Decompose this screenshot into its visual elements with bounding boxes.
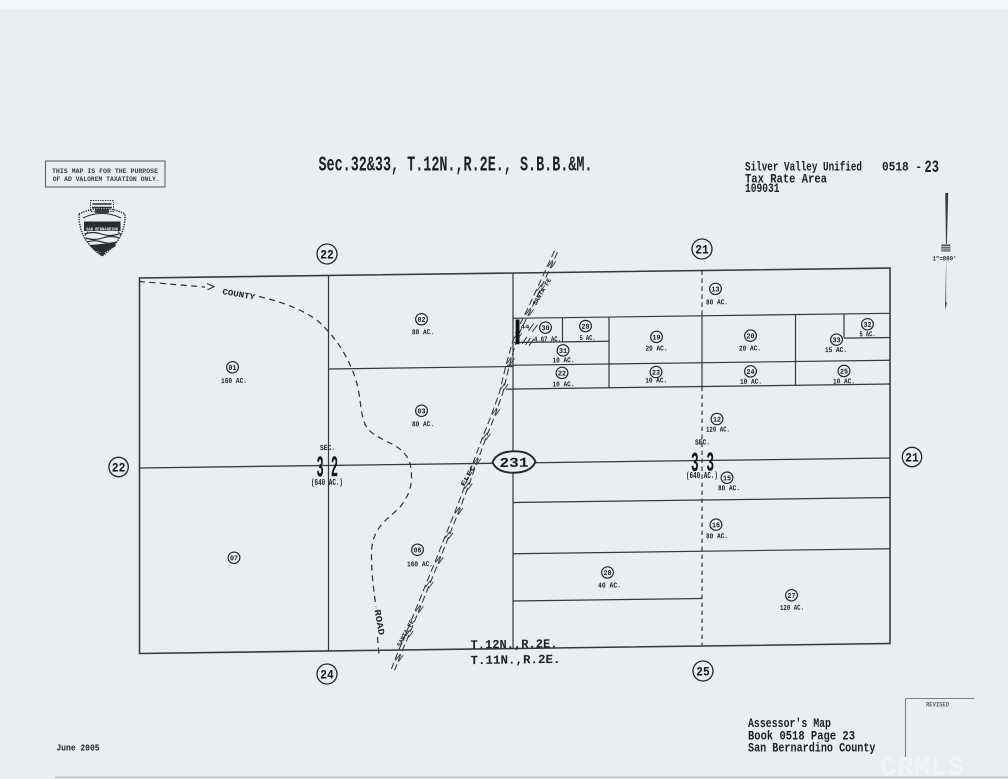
svg-text:160 AC.: 160 AC.: [407, 561, 433, 569]
svg-text:16: 16: [712, 522, 720, 530]
svg-text:23: 23: [652, 370, 660, 378]
svg-text:10 AC.: 10 AC.: [740, 379, 762, 387]
svg-text:40 AC.: 40 AC.: [598, 582, 621, 590]
svg-text:REVISED: REVISED: [926, 702, 949, 709]
svg-text:25: 25: [696, 665, 710, 679]
svg-text:SAN BERNARDINO: SAN BERNARDINO: [86, 226, 118, 232]
svg-text:160 AC.: 160 AC.: [221, 378, 247, 386]
svg-text:80 AC.: 80 AC.: [706, 533, 728, 541]
svg-text:20 AC.: 20 AC.: [739, 345, 761, 353]
svg-text:24: 24: [747, 369, 756, 377]
svg-text:27: 27: [787, 593, 795, 601]
svg-text:28: 28: [604, 570, 612, 578]
svg-text:CRMLS: CRMLS: [880, 754, 964, 779]
svg-text:13: 13: [712, 286, 720, 294]
svg-text:THIS MAP IS FOR THE PURPOSE: THIS MAP IS FOR THE PURPOSE: [52, 168, 158, 175]
svg-text:10 AC.: 10 AC.: [553, 357, 575, 365]
svg-text:15 AC.: 15 AC.: [825, 347, 847, 355]
svg-text:San Bernardino County: San Bernardino County: [748, 742, 876, 756]
svg-text:02: 02: [418, 317, 426, 325]
svg-text:4.67 AC.: 4.67 AC.: [534, 336, 561, 344]
svg-text:80 AC.: 80 AC.: [718, 485, 740, 493]
svg-text:10 AC.: 10 AC.: [833, 378, 855, 386]
svg-text:25: 25: [840, 368, 848, 376]
svg-text:22: 22: [558, 370, 566, 378]
svg-text:23: 23: [925, 158, 940, 178]
svg-text:120 AC.: 120 AC.: [780, 605, 804, 613]
svg-text:5 AC.: 5 AC.: [860, 331, 876, 339]
svg-text:33: 33: [833, 337, 841, 345]
svg-text:10 AC.: 10 AC.: [645, 377, 667, 385]
svg-text:20: 20: [747, 333, 755, 341]
svg-text:(640 AC.): (640 AC.): [686, 470, 718, 481]
svg-text:06: 06: [414, 547, 422, 555]
svg-text:21: 21: [905, 451, 919, 465]
svg-text:20 AC.: 20 AC.: [646, 345, 668, 353]
svg-text:31: 31: [559, 348, 568, 356]
svg-text:SEC.: SEC.: [695, 439, 710, 447]
svg-text:5 AC.: 5 AC.: [579, 335, 595, 343]
svg-text:Sec.32&33, T.12N.,R.2E., S.B.B: Sec.32&33, T.12N.,R.2E., S.B.B.&M.: [319, 155, 593, 178]
svg-text:22: 22: [320, 248, 334, 262]
svg-text:10 AC.: 10 AC.: [553, 381, 575, 389]
svg-text:June 2005: June 2005: [57, 744, 100, 754]
svg-text:32: 32: [864, 322, 872, 330]
svg-text:19: 19: [653, 334, 661, 342]
svg-text:21: 21: [695, 243, 709, 257]
svg-text:231: 231: [500, 457, 529, 472]
svg-text:01: 01: [228, 365, 237, 373]
svg-text:80 AC.: 80 AC.: [412, 421, 434, 429]
svg-text:03: 03: [418, 408, 426, 416]
svg-text:24: 24: [320, 668, 334, 682]
svg-text:28: 28: [582, 324, 590, 332]
svg-text:30: 30: [542, 325, 550, 333]
svg-text:80 AC.: 80 AC.: [706, 299, 728, 307]
svg-text:15: 15: [723, 475, 731, 483]
svg-text:120 AC.: 120 AC.: [706, 426, 730, 434]
svg-text:109031: 109031: [745, 182, 780, 196]
svg-text:07: 07: [230, 555, 238, 563]
svg-text:(640 AC.): (640 AC.): [311, 477, 343, 488]
svg-text:1"=800': 1"=800': [933, 256, 957, 263]
svg-text:80 AC.: 80 AC.: [412, 329, 434, 337]
svg-text:44: 44: [521, 324, 531, 330]
svg-text:0518 -: 0518 -: [882, 161, 922, 175]
svg-text:22: 22: [112, 461, 126, 475]
svg-text:T.12N.,R.2E.: T.12N.,R.2E.: [471, 637, 558, 652]
svg-text:OF AD VALOREM TAXATION ONLY.: OF AD VALOREM TAXATION ONLY.: [53, 176, 160, 183]
svg-text:T.11N.,R.2E.: T.11N.,R.2E.: [471, 653, 561, 668]
svg-text:12: 12: [713, 417, 721, 425]
